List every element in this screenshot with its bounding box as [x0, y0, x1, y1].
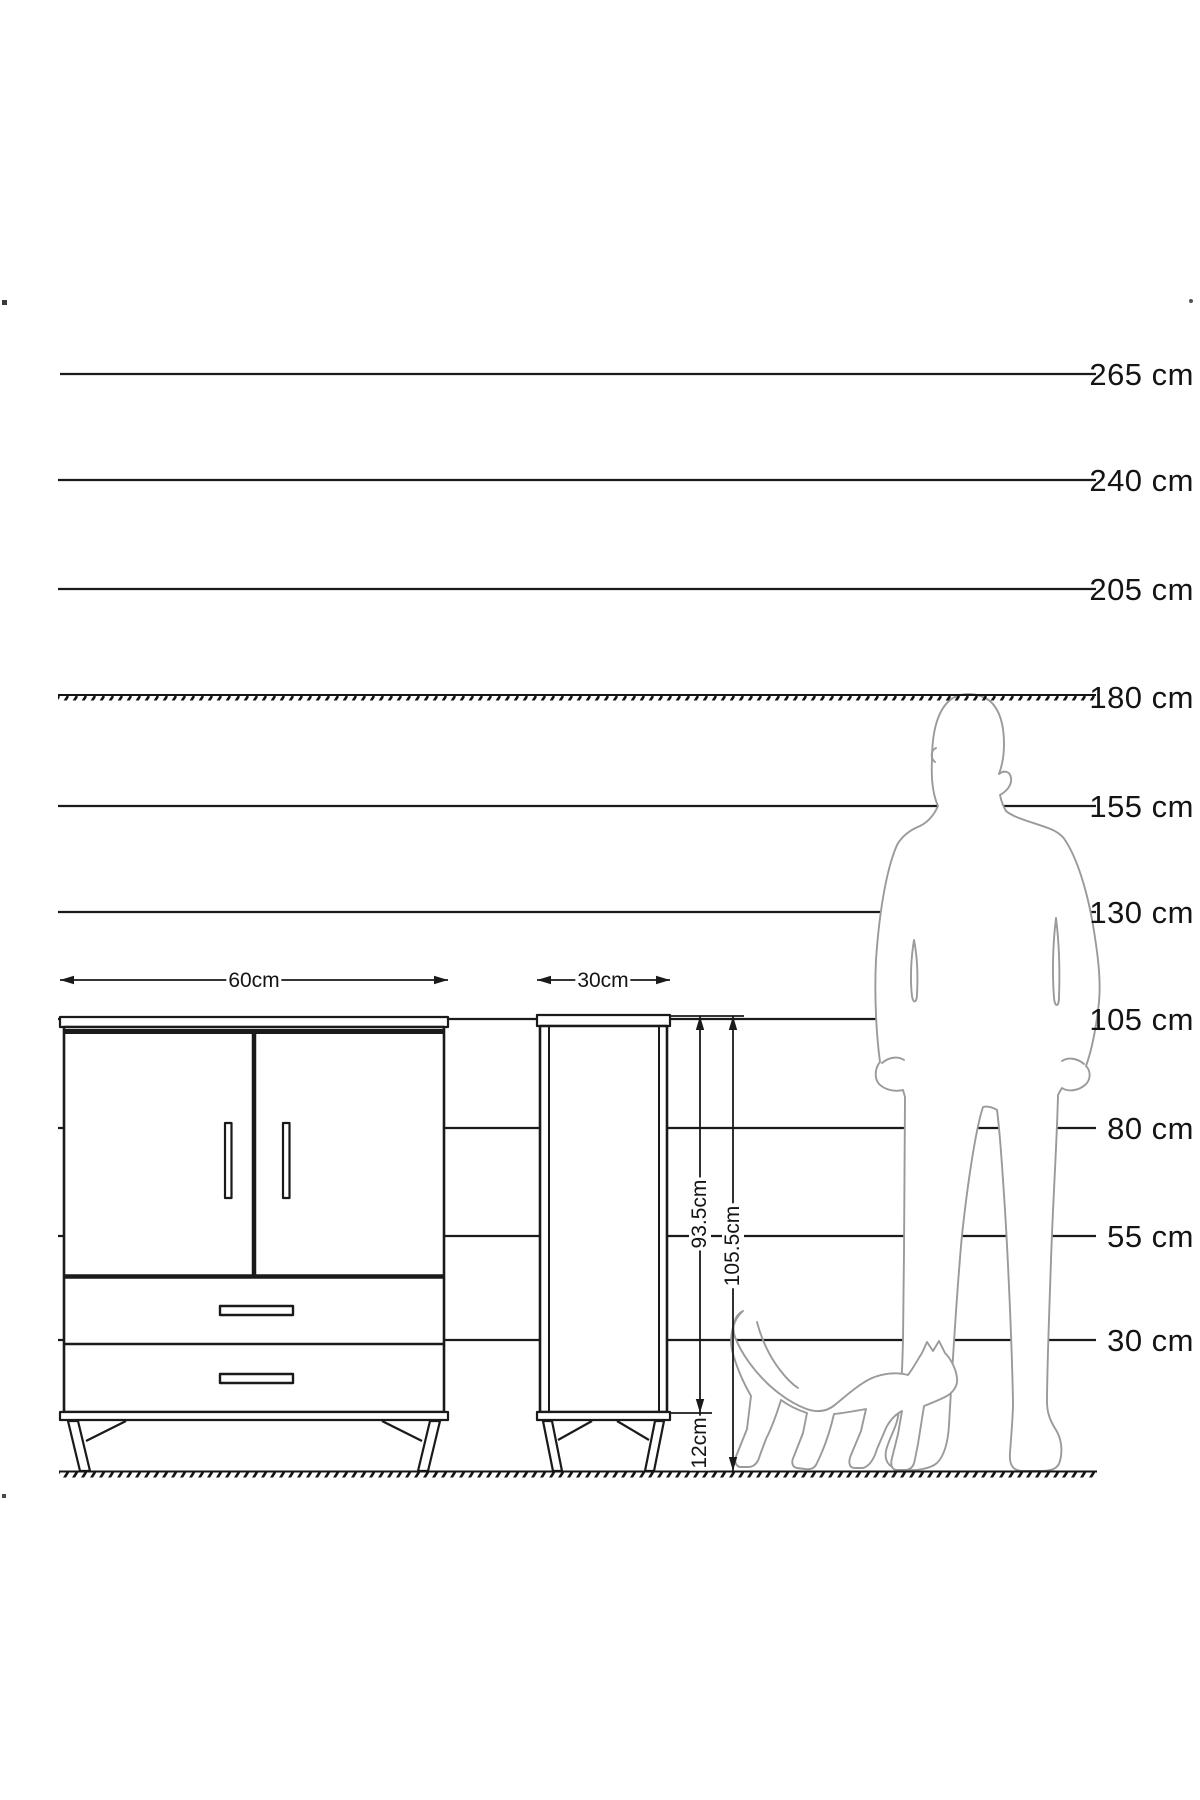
scale-label-265: 265 cm [1089, 358, 1194, 391]
scale-label-180: 180 cm [1089, 681, 1194, 714]
dim-label-leg-height: 12cm [689, 1415, 711, 1470]
artifact-speck [1189, 299, 1193, 303]
dim-arrow [537, 976, 551, 984]
scale-label-80: 80 cm [1107, 1112, 1194, 1145]
man-outline [875, 694, 1099, 1471]
scale-label-205: 205 cm [1089, 573, 1194, 606]
tall-cabinet-bottom-board [537, 1412, 670, 1420]
dim-label-large-width: 60cm [226, 970, 281, 992]
large-cabinet-top-board [60, 1017, 448, 1027]
scale-label-130: 130 cm [1089, 896, 1194, 929]
hatched-180cm-line [58, 695, 1096, 701]
dim-label-total-height: 105.5cm [722, 1204, 744, 1289]
scale-label-155: 155 cm [1089, 790, 1194, 823]
drawer-handle-top [220, 1306, 293, 1315]
door-handle-left [225, 1123, 232, 1198]
tall-cabinet-leg-right-strut [617, 1421, 649, 1440]
artifact-speck [2, 300, 7, 305]
ground-hatch [59, 1472, 1097, 1478]
tall-cabinet-leg-left [543, 1421, 562, 1471]
tall-cabinet-top-board [537, 1015, 670, 1026]
dim-label-body-height: 93.5cm [689, 1178, 711, 1251]
large-cabinet-bottom-board [60, 1412, 448, 1420]
large-cabinet [60, 1017, 448, 1471]
man-silhouette [875, 694, 1099, 1471]
large-cabinet-leg-right [418, 1421, 440, 1471]
scale-label-105: 105 cm [1089, 1003, 1194, 1036]
dim-arrow [60, 976, 74, 984]
scale-label-240: 240 cm [1089, 464, 1194, 497]
ground-line [59, 1472, 1097, 1478]
man-arm-gap-left [911, 940, 917, 1001]
tall-cabinet [537, 1015, 744, 1471]
dim-label-small-width: 30cm [575, 970, 630, 992]
large-cabinet-leg-left [68, 1421, 90, 1471]
tall-cabinet-leg-right [645, 1421, 664, 1471]
door-handle-right [283, 1123, 290, 1198]
scale-label-30: 30 cm [1107, 1324, 1194, 1357]
dim-arrow [434, 976, 448, 984]
size-chart-diagram: 265 cm 240 cm 205 cm 180 cm 155 cm 130 c… [0, 0, 1200, 1800]
tall-cabinet-leg-left-strut [558, 1421, 592, 1440]
tall-cabinet-body [540, 1026, 667, 1412]
artifact-speck [2, 1494, 6, 1498]
scale-label-55: 55 cm [1107, 1220, 1194, 1253]
large-cabinet-leg-right-strut [382, 1421, 422, 1441]
dim-arrow [656, 976, 670, 984]
dim-arrow [696, 1399, 704, 1413]
line-180-hatch [58, 695, 1096, 701]
drawer-handle-bottom [220, 1374, 293, 1383]
large-cabinet-leg-left-strut [86, 1421, 126, 1441]
